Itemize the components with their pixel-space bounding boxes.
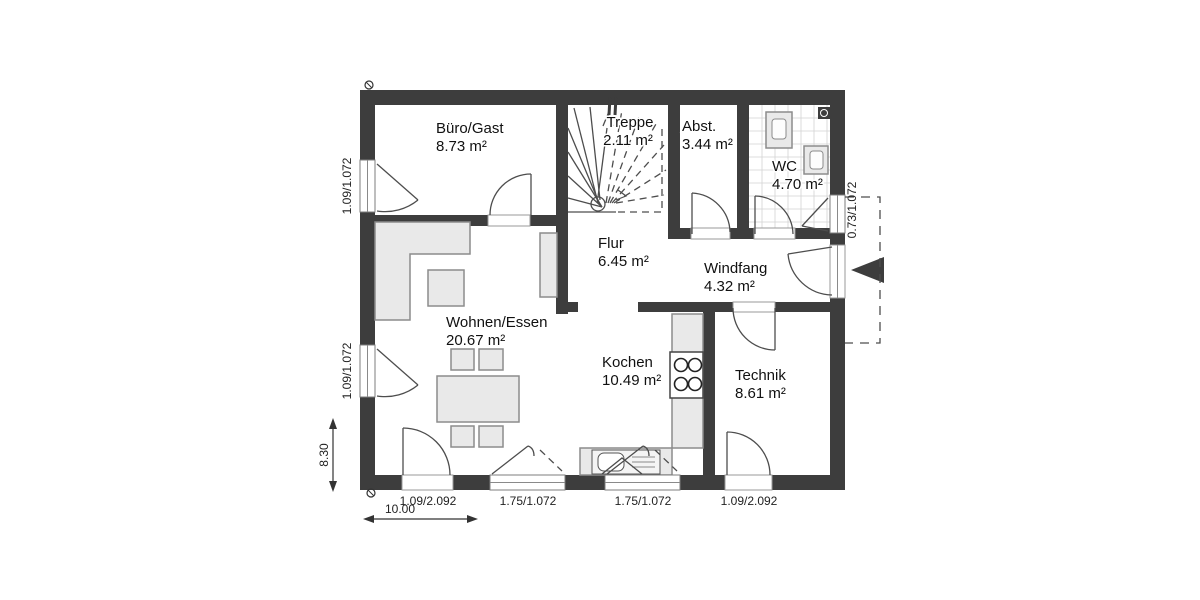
kitchen-fixtures [580,314,703,475]
chair [479,426,503,447]
room-name-abst: Abst. [682,118,716,135]
room-area-kochen: 10.49 m² [602,372,661,389]
label-window-left-top: 1.09/1.072 [340,157,354,214]
room-name-technik: Technik [735,367,786,384]
door-buero [488,174,531,226]
entrance-arrow-icon [851,257,884,283]
dim-label-height: 8.30 [317,443,331,467]
room-name-flur: Flur [598,235,624,252]
label-window-left-bottom: 1.09/1.072 [340,342,354,399]
wall-stair-west [556,105,568,314]
chair [451,349,474,370]
room-name-wohnen: Wohnen/Essen [446,314,547,331]
room-area-abst: 3.44 m² [682,136,733,153]
origin-marker-bottom [367,489,375,497]
room-name-wc: WC [772,158,797,175]
label-window-bottom-kitchen: 1.75/1.072 [615,494,672,508]
wall-kochen-technik [703,312,715,475]
dining-table [437,376,519,422]
window-wc-right [802,195,845,233]
room-name-treppe: Treppe [607,114,654,131]
wall-abst-wc [737,105,749,238]
window-left-top [360,160,418,212]
wall-treppe-abst [668,105,680,238]
room-area-treppe: 2.11 m² [603,132,653,149]
door-abstellraum [691,193,730,239]
room-area-windfang: 4.32 m² [704,278,755,295]
window-bottom-left [490,446,565,490]
floorplan-canvas: Büro/Gast 8.73 m² Treppe 2.11 m² Abst. 3… [0,0,1200,600]
vent-shaft [818,107,830,119]
room-name-kochen: Kochen [602,354,653,371]
room-name-windfang: Windfang [704,260,767,277]
room-area-wohnen: 20.67 m² [446,332,505,349]
origin-marker-top [365,81,373,89]
floorplan-drawing: Büro/Gast 8.73 m² Treppe 2.11 m² Abst. 3… [0,0,1200,600]
sideboard [540,233,557,297]
wall-top [360,90,845,105]
sink-basin [598,453,624,471]
wall-windfang-south [638,302,733,312]
room-area-technik: 8.61 m² [735,385,786,402]
coffee-table [428,270,464,306]
door-wc [754,196,795,239]
door-technik-bottom [725,432,772,490]
room-area-wc: 4.70 m² [772,176,823,193]
label-window-bottom-left: 1.75/1.072 [500,494,557,508]
label-door-technik: 1.09/2.092 [721,494,778,508]
dim-label-width: 10.00 [385,502,415,516]
window-left-bottom [360,345,418,397]
room-name-buero: Büro/Gast [436,120,504,137]
door-living-terrace [402,428,453,490]
door-entrance [788,245,845,298]
chair [451,426,474,447]
room-area-buero: 8.73 m² [436,138,487,155]
chair [479,349,503,370]
room-area-flur: 6.45 m² [598,253,649,270]
door-technik-top [733,302,775,350]
label-window-wc: 0.73/1.072 [845,181,859,238]
